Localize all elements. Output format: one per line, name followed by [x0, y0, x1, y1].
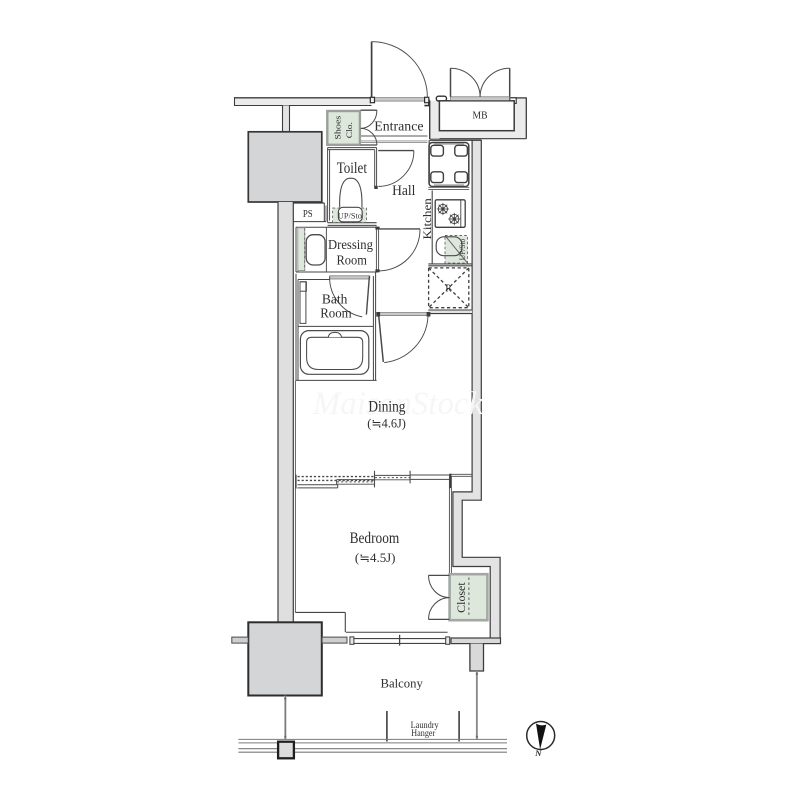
svg-text:Bath: Bath: [322, 292, 348, 307]
svg-text:Clo.: Clo.: [344, 122, 354, 138]
svg-text:Shoes: Shoes: [333, 115, 343, 140]
svg-text:Entrance: Entrance: [374, 118, 423, 133]
svg-text:PS: PS: [303, 208, 313, 220]
svg-text:UP/Sto: UP/Sto: [338, 210, 362, 220]
svg-text:Closet: Closet: [454, 582, 468, 613]
svg-text:(≒4.6J): (≒4.6J): [367, 417, 406, 431]
svg-text:UP/Sto: UP/Sto: [457, 239, 467, 261]
svg-text:Hanger: Hanger: [411, 728, 435, 738]
svg-text:MB: MB: [473, 110, 488, 122]
svg-text:Balcony: Balcony: [381, 675, 424, 690]
svg-text:Room: Room: [337, 252, 368, 267]
svg-text:Hall: Hall: [392, 183, 415, 199]
svg-text:Dressing: Dressing: [328, 237, 373, 252]
svg-text:Dining: Dining: [368, 398, 405, 415]
svg-text:R: R: [445, 283, 452, 295]
svg-text:Bedroom: Bedroom: [350, 530, 400, 547]
svg-text:N: N: [534, 748, 542, 758]
svg-text:(≒4.5J): (≒4.5J): [355, 551, 396, 565]
svg-text:Toilet: Toilet: [337, 160, 368, 177]
svg-text:Room: Room: [320, 306, 352, 321]
svg-text:Kitchen: Kitchen: [422, 198, 434, 240]
